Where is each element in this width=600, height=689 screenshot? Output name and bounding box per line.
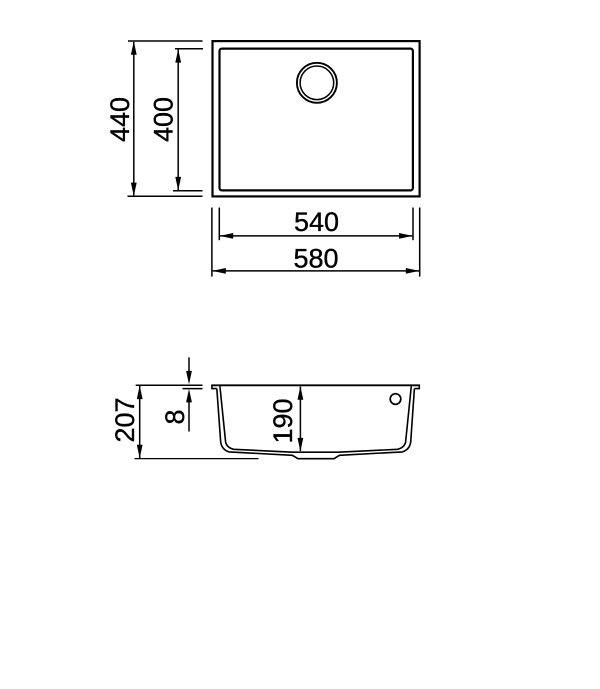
svg-text:190: 190	[268, 398, 298, 443]
svg-text:440: 440	[105, 97, 135, 142]
svg-text:400: 400	[149, 97, 179, 142]
svg-text:540: 540	[294, 207, 339, 237]
svg-text:207: 207	[110, 397, 140, 442]
svg-text:8: 8	[160, 409, 190, 424]
svg-text:580: 580	[293, 244, 338, 274]
